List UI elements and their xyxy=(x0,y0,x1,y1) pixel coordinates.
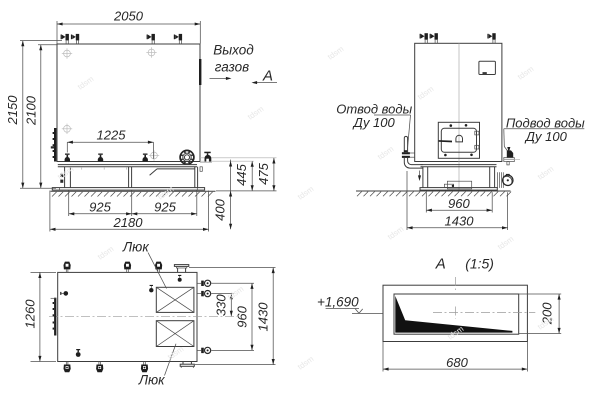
svg-text:+1,690: +1,690 xyxy=(317,295,359,310)
svg-text:А: А xyxy=(435,255,446,272)
svg-text:680: 680 xyxy=(446,355,468,370)
svg-text:960: 960 xyxy=(448,196,470,211)
svg-text:1225: 1225 xyxy=(97,128,127,143)
svg-text:(1:5): (1:5) xyxy=(465,256,494,272)
svg-text:Ду 100: Ду 100 xyxy=(352,115,396,130)
svg-text:Люк: Люк xyxy=(138,372,165,387)
svg-text:960: 960 xyxy=(234,305,249,327)
svg-text:400: 400 xyxy=(213,198,228,220)
svg-text:газов: газов xyxy=(215,60,249,75)
svg-text:2180: 2180 xyxy=(113,215,144,230)
svg-text:445: 445 xyxy=(234,163,249,185)
svg-text:925: 925 xyxy=(154,199,176,214)
svg-text:1430: 1430 xyxy=(256,302,271,332)
svg-text:2050: 2050 xyxy=(113,8,144,23)
svg-text:Ду 100: Ду 100 xyxy=(524,129,568,144)
svg-text:1260: 1260 xyxy=(22,299,37,329)
svg-text:475: 475 xyxy=(256,162,271,184)
svg-text:А: А xyxy=(262,68,273,85)
svg-text:Люк: Люк xyxy=(122,239,149,254)
svg-text:2100: 2100 xyxy=(23,95,38,126)
svg-text:925: 925 xyxy=(89,199,111,214)
svg-text:330: 330 xyxy=(214,294,229,316)
svg-text:2150: 2150 xyxy=(5,95,20,126)
svg-text:Выход: Выход xyxy=(213,43,254,58)
svg-text:1430: 1430 xyxy=(445,213,475,228)
